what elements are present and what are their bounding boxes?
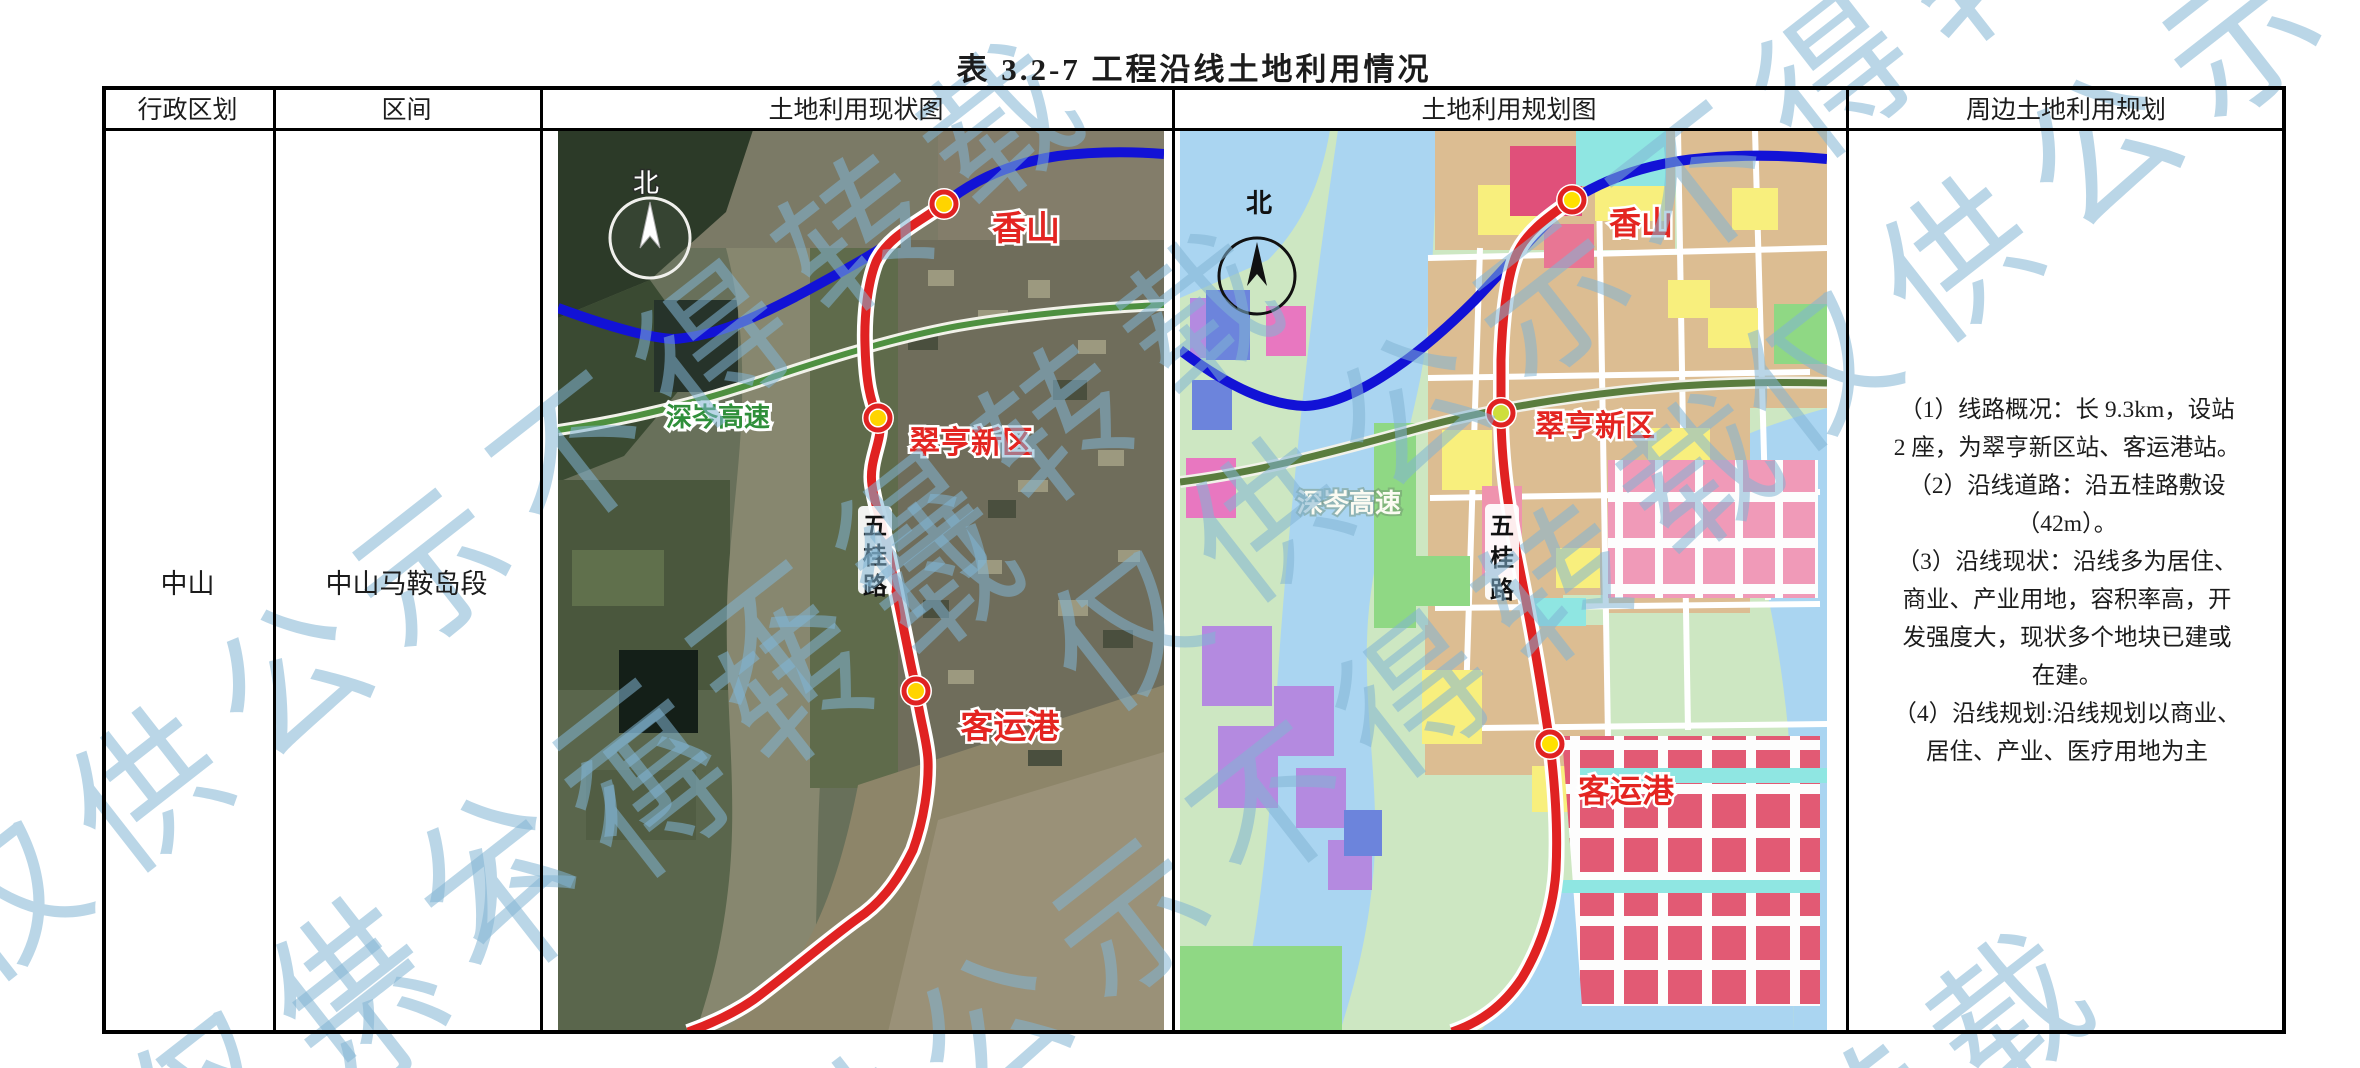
header-planned-map: 土地利用规划图	[1172, 88, 1846, 128]
note-line: 商业、产业用地，容积率高，开	[1850, 581, 2284, 619]
header-district: 行政区划	[102, 88, 273, 128]
station-label-xiangshan: 香山	[992, 210, 1060, 248]
planned-landuse-map: 五 桂 路 深岑高速 香山 翠亨新区 客运港	[1180, 130, 1827, 1032]
road-char-1: 五	[1490, 513, 1514, 540]
cell-surrounding-notes: （1）线路概况：长 9.3km，设站 2 座，为翠亨新区站、客运港站。 （2）沿…	[1850, 391, 2284, 771]
station-label-cuiheng: 翠亨新区	[1535, 410, 1655, 443]
note-line: （2）沿线道路：沿五桂路敷设	[1850, 467, 2284, 505]
north-label: 北	[1246, 188, 1272, 218]
document-page: 表 3.2-7 工程沿线土地利用情况	[0, 0, 2360, 1068]
station-xiangshan-marker	[928, 188, 960, 220]
station-xiangshan-marker	[1556, 184, 1588, 216]
road-char-1: 五	[863, 513, 887, 540]
note-line: （4）沿线规划:沿线规划以商业、	[1850, 695, 2284, 733]
column-divider-2	[540, 86, 543, 1034]
station-cuiheng-marker	[862, 402, 894, 434]
road-char-3: 路	[863, 572, 888, 600]
header-surrounding: 周边土地利用规划	[1846, 88, 2286, 128]
note-line: （3）沿线现状：沿线多为居住、	[1850, 543, 2284, 581]
current-landuse-map: 五 桂 路 深岑高速 香山 翠亨新区 客运港	[558, 130, 1164, 1032]
road-char-2: 桂	[1490, 545, 1514, 572]
cell-section: 中山马鞍岛段	[273, 131, 540, 1031]
road-char-3: 路	[1490, 576, 1515, 604]
station-label-cuiheng: 翠亨新区	[909, 425, 1033, 460]
note-line: （1）线路概况：长 9.3km，设站	[1850, 391, 2284, 429]
highway-label: 深岑高速	[666, 402, 770, 432]
station-cuiheng-marker	[1485, 397, 1517, 429]
road-char-2: 桂	[863, 543, 887, 570]
note-line: 在建。	[1850, 657, 2284, 695]
station-label-keyungang: 客运港	[961, 708, 1061, 745]
highway-label: 深岑高速	[1297, 488, 1401, 518]
cell-district: 中山	[102, 131, 273, 1031]
road-sign-wugui: 五 桂 路	[1485, 504, 1519, 604]
station-keyungang-marker	[900, 675, 932, 707]
station-keyungang-marker	[1534, 728, 1566, 760]
note-line: 发强度大，现状多个地块已建或	[1850, 619, 2284, 657]
note-line: 居住、产业、医疗用地为主	[1850, 733, 2284, 771]
column-divider-3	[1172, 86, 1175, 1034]
planning-map-svg: 五 桂 路 深岑高速 香山 翠亨新区 客运港	[1180, 130, 1827, 1032]
note-line: 2 座，为翠亨新区站、客运港站。	[1850, 429, 2284, 467]
north-label: 北	[633, 168, 659, 198]
station-label-keyungang: 客运港	[1578, 773, 1675, 809]
header-section: 区间	[273, 88, 540, 128]
satellite-map-svg: 五 桂 路 深岑高速 香山 翠亨新区 客运港	[558, 130, 1164, 1032]
column-divider-4	[1846, 86, 1849, 1034]
note-line: （42m）。	[1850, 505, 2284, 543]
road-sign-wugui: 五 桂 路	[858, 506, 892, 600]
table-title: 表 3.2-7 工程沿线土地利用情况	[102, 44, 2286, 89]
station-label-xiangshan: 香山	[1609, 205, 1673, 241]
header-current-map: 土地利用现状图	[540, 88, 1172, 128]
